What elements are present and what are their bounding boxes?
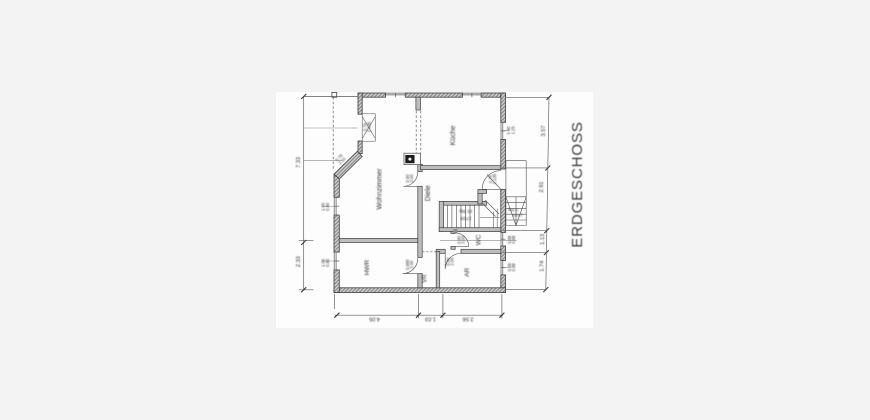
svg-text:15 Stg: 15 Stg: [459, 209, 473, 214]
svg-text:3.57: 3.57: [541, 125, 547, 136]
svg-text:VR: VR: [422, 274, 428, 283]
svg-text:2.00: 2.00: [460, 235, 465, 244]
svg-text:Wohnzimmer: Wohnzimmer: [376, 168, 383, 210]
svg-text:4.05: 4.05: [369, 316, 380, 322]
svg-text:1.13: 1.13: [540, 234, 546, 245]
svg-text:0.88: 0.88: [511, 263, 516, 272]
svg-text:Küche: Küche: [450, 125, 457, 145]
svg-text:2.91: 2.91: [539, 181, 545, 192]
svg-text:0.88: 0.88: [511, 235, 516, 244]
svg-text:HWR: HWR: [364, 259, 371, 275]
svg-text:7.33: 7.33: [296, 157, 302, 168]
svg-text:2.00: 2.00: [450, 257, 455, 266]
svg-text:ERDGESCHOSS: ERDGESCHOSS: [569, 121, 586, 248]
svg-text:WC: WC: [475, 234, 482, 245]
svg-text:2.00: 2.00: [409, 174, 414, 183]
svg-text:2.33: 2.33: [296, 256, 302, 267]
svg-text:1.03: 1.03: [425, 316, 436, 322]
svg-text:2.56: 2.56: [462, 316, 473, 322]
svg-text:0.80: 0.80: [325, 258, 330, 267]
svg-text:0.80: 0.80: [325, 202, 330, 211]
svg-text:17/25: 17/25: [512, 213, 523, 218]
svg-text:2.135: 2.135: [367, 121, 372, 132]
svg-text:2.00: 2.00: [409, 260, 414, 269]
svg-text:6 Stg: 6 Stg: [508, 208, 517, 213]
svg-text:17/29: 17/29: [460, 216, 472, 221]
svg-text:AR: AR: [464, 267, 471, 276]
svg-text:2.135: 2.135: [492, 173, 497, 184]
svg-text:1.25: 1.25: [511, 126, 516, 135]
svg-text:1.74: 1.74: [540, 261, 546, 272]
svg-text:Diele: Diele: [425, 185, 432, 201]
